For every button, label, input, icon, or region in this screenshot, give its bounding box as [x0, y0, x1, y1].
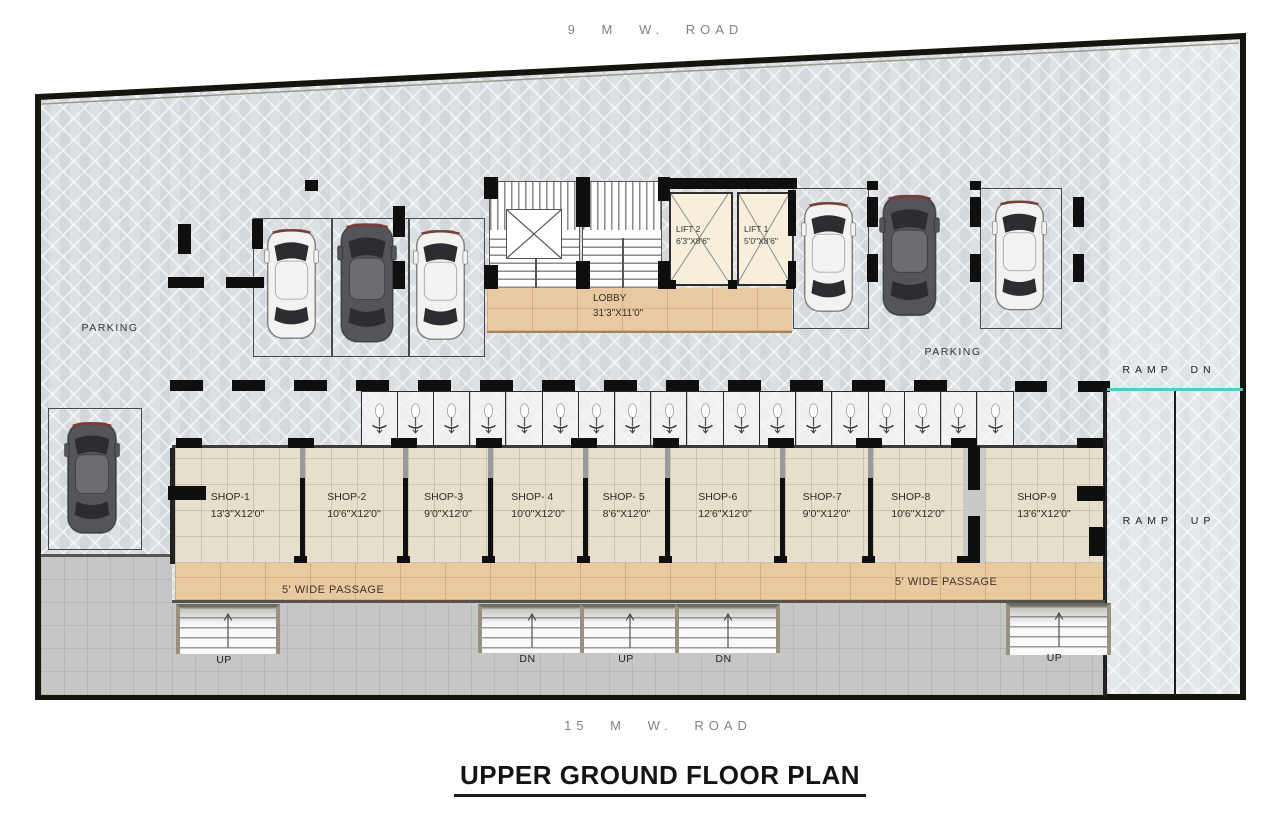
dashed-wall-row: [170, 380, 968, 391]
scooter-stall: [505, 391, 543, 447]
car-white: [800, 190, 857, 324]
car-dark: [336, 210, 398, 356]
scooter-icon: [551, 396, 570, 442]
wall-segment: [178, 224, 191, 254]
scooter-icon: [877, 396, 896, 442]
parking-label-right: PARKING: [913, 346, 993, 358]
wall-segment: [288, 438, 314, 448]
shop-label: SHOP-210'6"X12'0": [305, 448, 403, 563]
scooter-icon: [370, 396, 389, 442]
shop-3-room: SHOP-39'0"X12'0": [408, 448, 488, 563]
wall-segment: [576, 177, 590, 227]
wall-segment: [867, 254, 878, 282]
stall-divider: [331, 219, 333, 356]
wall-segment: [856, 438, 882, 448]
shop-label: SHOP- 410'0"X12'0": [493, 448, 583, 563]
lift-2: LIFT 26'3"X8'6": [669, 192, 733, 286]
scooter-icon: [696, 396, 715, 442]
scooter-icon: [804, 396, 823, 442]
wall-segment: [867, 197, 878, 227]
wall-segment: [305, 180, 318, 191]
car-dark: [63, 411, 121, 545]
wall-segment: [393, 206, 405, 237]
wall-segment: [168, 486, 206, 500]
ramp-dn-label: RAMP DN: [1108, 364, 1230, 376]
shop-label: SHOP-612'6"X12'0": [670, 448, 780, 563]
scooter-icon: [479, 396, 498, 442]
stair-label: DN: [675, 653, 772, 665]
shop-7-room: SHOP-79'0"X12'0": [785, 448, 868, 563]
shop-8-room: SHOP-810'6"X12'0": [873, 448, 963, 563]
stair-x-box: [506, 209, 562, 259]
stair-treads: [583, 238, 661, 288]
scooter-stall: [976, 391, 1014, 447]
wall-segment: [653, 438, 679, 448]
shop-divider: [403, 448, 408, 563]
scooter-icon: [442, 396, 461, 442]
shop-divider: [488, 448, 493, 563]
lift-1: LIFT 15'0"X8'6": [737, 192, 794, 286]
scooter-icon: [986, 396, 1005, 442]
wall-segment: [728, 280, 737, 289]
wall-segment: [1015, 381, 1047, 392]
scooter-stall: [723, 391, 761, 447]
scooter-icon: [949, 396, 968, 442]
shop-label: SHOP-113'3"X12'0": [175, 448, 300, 563]
staircase-left: [489, 181, 580, 289]
title-row: UPPER GROUND FLOOR PLAN: [40, 760, 1277, 797]
car-dark: [878, 183, 941, 328]
wall-segment: [1073, 254, 1084, 282]
wall-segment: [970, 254, 981, 282]
passage-wall: [172, 600, 1105, 603]
floor-plan-title: UPPER GROUND FLOOR PLAN: [454, 760, 866, 797]
ramp-up-label: RAMP UP: [1108, 515, 1230, 527]
stair-up-3: [1006, 603, 1111, 655]
scooter-stall: [433, 391, 471, 447]
concrete-apron-left: [41, 556, 172, 695]
stair-dn-1: [478, 604, 585, 653]
stair-treads: [583, 182, 661, 230]
wall-segment: [968, 446, 980, 490]
car-white: [263, 216, 320, 352]
scooter-icon: [732, 396, 751, 442]
scooter-stall: [795, 391, 833, 447]
staircase-right: [582, 181, 662, 289]
wall-segment: [476, 438, 502, 448]
shop-5-room: SHOP- 58'6"X12'0": [588, 448, 665, 563]
floor-plan-canvas: 9 M W. ROAD LIFT 26'3"X8'6": [0, 0, 1277, 831]
shop-divider: [300, 448, 305, 563]
scooter-stall: [614, 391, 652, 447]
passage-label-left: 5' WIDE PASSAGE: [282, 584, 384, 596]
shop-4-room: SHOP- 410'0"X12'0": [493, 448, 583, 563]
arrow-up-icon: [1051, 610, 1067, 648]
shop-divider: [780, 448, 785, 563]
passage-label-right: 5' WIDE PASSAGE: [895, 576, 997, 588]
wall-segment: [1077, 438, 1103, 448]
wall-segment: [666, 280, 676, 289]
scooter-icon: [623, 396, 642, 442]
lobby-label: LOBBY31'3"X11'0": [593, 291, 643, 321]
wall-segment: [1077, 486, 1105, 501]
lift-label: LIFT 26'3"X8'6": [676, 224, 710, 248]
car-white: [991, 189, 1048, 322]
parking-label-left: PARKING: [70, 322, 150, 334]
scooter-icon: [841, 396, 860, 442]
x-cross-icon: [507, 210, 561, 258]
shop-label: SHOP-79'0"X12'0": [785, 448, 868, 563]
wall-segment: [1073, 197, 1084, 227]
wall-segment: [768, 438, 794, 448]
arrow-up-icon: [720, 611, 736, 649]
wall-segment: [168, 277, 204, 288]
wall-segment: [391, 438, 417, 448]
shop-2-room: SHOP-210'6"X12'0": [305, 448, 403, 563]
shop-9-room: SHOP-913'6"X12'0": [985, 448, 1103, 563]
arrow-up-icon: [622, 611, 638, 649]
shop-1-room: SHOP-113'3"X12'0": [175, 448, 300, 563]
wall-segment: [665, 178, 797, 189]
shop-divider: [665, 448, 670, 563]
scooter-icon: [913, 396, 932, 442]
scooter-icon: [515, 396, 534, 442]
arrow-up-icon: [220, 611, 236, 649]
shop-label: SHOP-39'0"X12'0": [408, 448, 488, 563]
wall-segment: [571, 438, 597, 448]
wall-segment: [951, 438, 977, 448]
wall-segment: [576, 261, 590, 289]
wall-segment: [41, 554, 172, 557]
wall-segment: [970, 197, 981, 227]
shop-label: SHOP- 58'6"X12'0": [588, 448, 665, 563]
stair-label: DN: [478, 653, 577, 665]
car-white: [412, 217, 469, 353]
wall-segment: [176, 438, 202, 448]
scooter-icon: [660, 396, 679, 442]
stair-label: UP: [1006, 652, 1103, 664]
stair-label: UP: [580, 653, 672, 665]
wall-segment: [252, 219, 263, 249]
wall-segment: [226, 277, 264, 288]
wall-segment: [867, 181, 878, 190]
shop-divider: [583, 448, 588, 563]
wall-segment: [786, 280, 795, 289]
ramp-divider-line: [1174, 391, 1176, 695]
stall-divider: [408, 219, 410, 356]
wall-segment: [393, 261, 405, 289]
scooter-stall: [904, 391, 942, 447]
scooter-icon: [587, 396, 606, 442]
arrow-up-icon: [524, 611, 540, 649]
lift-label: LIFT 15'0"X8'6": [744, 224, 778, 248]
stair-up-2: [580, 604, 680, 653]
wall-segment: [970, 181, 981, 190]
wall-segment: [1089, 527, 1105, 556]
wall-segment: [484, 265, 498, 289]
stair-up-1: [176, 604, 280, 654]
shop-6-room: SHOP-612'6"X12'0": [670, 448, 780, 563]
shop-left-wall: [170, 448, 175, 564]
stair-dn-2: [675, 604, 780, 653]
scooter-icon: [768, 396, 787, 442]
shop-divider: [868, 448, 873, 563]
scooter-icon: [406, 396, 425, 442]
road-label-bottom: 15 M W. ROAD: [38, 718, 1277, 733]
shop-label: SHOP-913'6"X12'0": [985, 448, 1103, 563]
wall-segment: [484, 177, 498, 199]
stair-label: UP: [176, 654, 272, 666]
wall-segment: [788, 190, 796, 236]
shop-label: SHOP-810'6"X12'0": [873, 448, 963, 563]
scooter-stall: [686, 391, 724, 447]
scooter-row: [362, 391, 1014, 447]
